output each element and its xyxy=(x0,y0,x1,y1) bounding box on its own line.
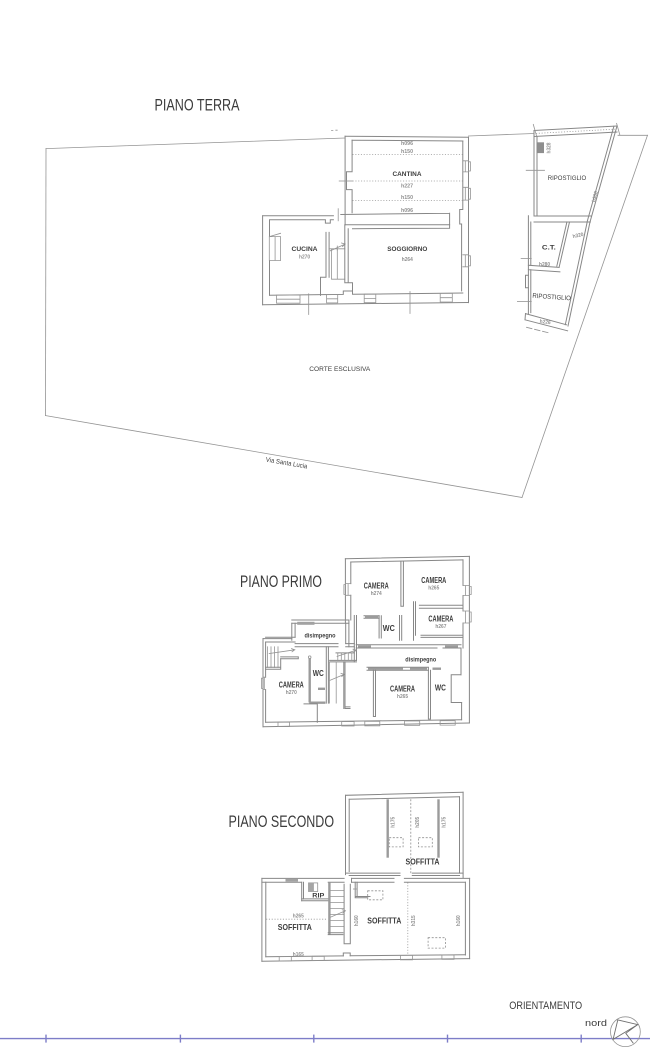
svg-text:CANTINA: CANTINA xyxy=(393,171,422,178)
svg-text:PIANO PRIMO: PIANO PRIMO xyxy=(240,573,322,591)
svg-text:h160: h160 xyxy=(354,915,360,926)
svg-text:RIPOSTIGLIO: RIPOSTIGLIO xyxy=(548,175,587,182)
svg-text:CAMERA: CAMERA xyxy=(364,581,389,590)
svg-text:Via Santa Lucia: Via Santa Lucia xyxy=(265,457,308,471)
svg-text:nord: nord xyxy=(585,1018,607,1029)
svg-text:h265: h265 xyxy=(293,914,304,920)
svg-text:disimpegno: disimpegno xyxy=(405,656,436,663)
svg-text:CAMERA: CAMERA xyxy=(279,680,304,689)
svg-text:h320: h320 xyxy=(572,232,584,240)
svg-text:h267: h267 xyxy=(435,624,446,630)
svg-text:PIANO SECONDO: PIANO SECONDO xyxy=(229,813,335,831)
svg-text:h096: h096 xyxy=(401,141,413,147)
svg-text:h160: h160 xyxy=(456,915,462,926)
svg-text:h175: h175 xyxy=(441,817,447,828)
svg-text:h175: h175 xyxy=(391,817,397,828)
svg-text:h265: h265 xyxy=(428,586,439,592)
svg-text:CAMERA: CAMERA xyxy=(390,685,415,694)
svg-text:SOFFITTA: SOFFITTA xyxy=(367,916,401,925)
svg-text:WC: WC xyxy=(383,624,395,633)
svg-text:C.T.: C.T. xyxy=(542,245,556,252)
svg-text:WC: WC xyxy=(313,669,324,678)
svg-text:h264: h264 xyxy=(402,257,413,263)
svg-text:ORIENTAMENTO: ORIENTAMENTO xyxy=(509,1000,582,1012)
svg-text:h150: h150 xyxy=(401,195,413,201)
svg-text:disimpegno: disimpegno xyxy=(305,632,336,639)
svg-text:h165: h165 xyxy=(293,952,304,958)
svg-text:h265: h265 xyxy=(397,694,408,700)
svg-text:h150: h150 xyxy=(401,149,413,155)
svg-text:SOGGIORNO: SOGGIORNO xyxy=(387,246,427,253)
svg-text:CUCINA: CUCINA xyxy=(292,246,318,253)
svg-text:h274: h274 xyxy=(371,591,382,597)
svg-text:h328: h328 xyxy=(547,142,553,153)
svg-text:RIP: RIP xyxy=(312,893,325,900)
svg-text:SOFFITTA: SOFFITTA xyxy=(406,858,440,867)
svg-text:CAMERA: CAMERA xyxy=(428,614,453,623)
svg-text:h270: h270 xyxy=(299,255,310,261)
svg-text:CORTE ESCLUSIVA: CORTE ESCLUSIVA xyxy=(309,366,371,373)
svg-text:h096: h096 xyxy=(401,208,413,214)
svg-text:CAMERA: CAMERA xyxy=(421,576,446,585)
svg-text:RIPOSTIGLIO: RIPOSTIGLIO xyxy=(532,293,571,303)
svg-text:h226: h226 xyxy=(539,319,551,326)
svg-text:WC: WC xyxy=(435,683,446,692)
svg-text:SOFFITTA: SOFFITTA xyxy=(278,923,312,932)
svg-text:h315: h315 xyxy=(411,915,417,926)
svg-text:h270: h270 xyxy=(286,690,297,696)
svg-text:PIANO TERRA: PIANO TERRA xyxy=(155,96,240,114)
svg-text:h205: h205 xyxy=(415,817,421,828)
svg-text:h227: h227 xyxy=(401,184,413,190)
